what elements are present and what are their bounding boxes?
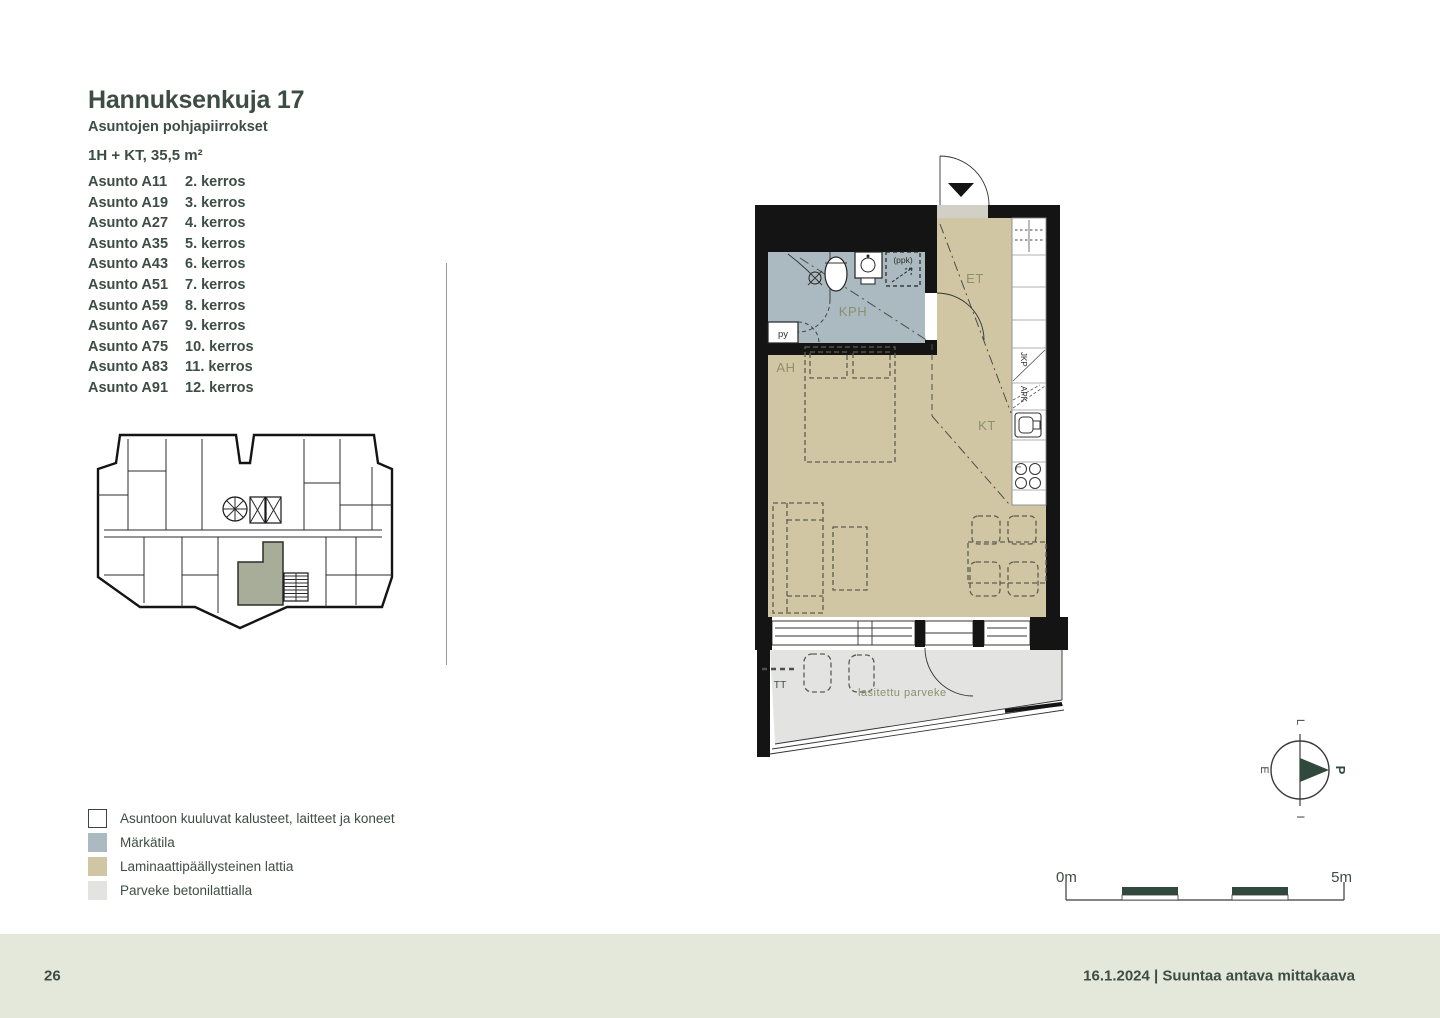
apartment-row: Asunto A11 2. kerros: [88, 172, 254, 193]
apartment-row: Asunto A27 4. kerros: [88, 213, 254, 234]
apartment-floor: 12. kerros: [185, 378, 254, 399]
scale-bar: 0m 5m: [1048, 858, 1360, 908]
legend-label: Laminaattipäällysteinen lattia: [120, 859, 293, 874]
footer-bar: 26 16.1.2024 | Suuntaa antava mittakaava: [0, 934, 1440, 1018]
apartment-id: Asunto A67: [88, 316, 185, 337]
legend: Asuntoon kuuluvat kalusteet, laitteet ja…: [88, 806, 395, 902]
apartment-row: Asunto A35 5. kerros: [88, 234, 254, 255]
apartment-row: Asunto A67 9. kerros: [88, 316, 254, 337]
apartment-row: Asunto A51 7. kerros: [88, 275, 254, 296]
tt-label: TT: [774, 679, 787, 691]
apartment-floor: 8. kerros: [185, 296, 254, 317]
apartment-type: 1H + KT, 35,5 m²: [88, 147, 203, 164]
entrance-label: ET: [966, 271, 984, 286]
brochure-page: Hannuksenkuja 17 Asuntojen pohjapiirroks…: [0, 0, 1440, 1018]
apartment-floor: 11. kerros: [185, 357, 254, 378]
apartment-id: Asunto A83: [88, 357, 185, 378]
page-subtitle: Asuntojen pohjapiirrokset: [88, 119, 268, 135]
kitchen-sink-icon: [1015, 413, 1041, 437]
legend-row: Laminaattipäällysteinen lattia: [88, 854, 395, 878]
compass-north: P: [1333, 766, 1348, 775]
apartment-floor: 5. kerros: [185, 234, 254, 255]
apartment-row: Asunto A19 3. kerros: [88, 193, 254, 214]
entrance-threshold: [937, 205, 988, 218]
apartment-floor: 6. kerros: [185, 254, 254, 275]
kitchen-label: KT: [978, 418, 996, 433]
ppk-label: (ppk): [893, 255, 913, 265]
apartment-id: Asunto A43: [88, 254, 185, 275]
compass-south: E: [1258, 766, 1270, 773]
apartment-floor: 3. kerros: [185, 193, 254, 214]
toilet-icon: [825, 257, 847, 291]
apartment-id: Asunto A11: [88, 172, 185, 193]
page-title: Hannuksenkuja 17: [88, 86, 304, 115]
footer-note: 16.1.2024 | Suuntaa antava mittakaava: [1083, 968, 1355, 985]
building-key-plan: [88, 425, 400, 637]
keyplan-elevators: [250, 497, 281, 523]
windows: [772, 617, 1030, 650]
page-number: 26: [44, 968, 61, 985]
apartment-floor: 4. kerros: [185, 213, 254, 234]
apartment-floor: 9. kerros: [185, 316, 254, 337]
jkp-label: JKP: [1019, 352, 1028, 367]
apartment-row: Asunto A91 12. kerros: [88, 378, 254, 399]
legend-swatch: [88, 857, 107, 876]
keyplan-stairs-hatch: [284, 573, 308, 601]
apartment-floor: 7. kerros: [185, 275, 254, 296]
legend-row: Asuntoon kuuluvat kalusteet, laitteet ja…: [88, 806, 395, 830]
apartment-row: Asunto A75 10. kerros: [88, 337, 254, 358]
apartment-id: Asunto A51: [88, 275, 185, 296]
legend-row: Märkätila: [88, 830, 395, 854]
vertical-divider: [446, 263, 447, 665]
scale-segment: [1232, 887, 1288, 895]
entrance-door: [940, 156, 989, 205]
legend-label: Parveke betonilattialla: [120, 883, 252, 898]
compass-east: I: [1294, 815, 1306, 818]
compass-west: L: [1294, 719, 1306, 725]
kitchen-fixtures: JKP APK L: [1012, 218, 1046, 505]
py-label: py: [778, 329, 788, 340]
apartment-id: Asunto A75: [88, 337, 185, 358]
north-arrow: [1300, 758, 1329, 782]
livingroom-label: AH: [776, 360, 795, 375]
apartment-floor: 2. kerros: [185, 172, 254, 193]
entrance-marker-triangle: [948, 183, 974, 197]
legend-label: Märkätila: [120, 835, 175, 850]
legend-row: Parveke betonilattialla: [88, 878, 395, 902]
legend-label: Asuntoon kuuluvat kalusteet, laitteet ja…: [120, 811, 395, 826]
apartment-id: Asunto A35: [88, 234, 185, 255]
apartment-list: Asunto A11 2. kerros Asunto A19 3. kerro…: [88, 172, 254, 399]
apartment-id: Asunto A91: [88, 378, 185, 399]
apk-label: APK: [1019, 386, 1028, 403]
legend-swatch: [88, 809, 107, 828]
compass-rose: L E P I: [1255, 712, 1350, 827]
bathroom-label: KPH: [839, 304, 868, 319]
legend-swatch: [88, 833, 107, 852]
apartment-floor: 10. kerros: [185, 337, 254, 358]
apartment-id: Asunto A27: [88, 213, 185, 234]
keyplan-spiral-stair: [223, 497, 247, 521]
apartment-floorplan: (ppk) py JKP APK: [740, 140, 1070, 765]
balcony-label: lasitettu parveke: [858, 687, 947, 699]
apartment-id: Asunto A59: [88, 296, 185, 317]
legend-swatch: [88, 881, 107, 900]
scale-segment: [1122, 887, 1178, 895]
apartment-row: Asunto A43 6. kerros: [88, 254, 254, 275]
apartment-id: Asunto A19: [88, 193, 185, 214]
apartment-row: Asunto A59 8. kerros: [88, 296, 254, 317]
apartment-row: Asunto A83 11. kerros: [88, 357, 254, 378]
stove-label: L: [1014, 466, 1021, 470]
scale-end: 5m: [1331, 869, 1352, 886]
